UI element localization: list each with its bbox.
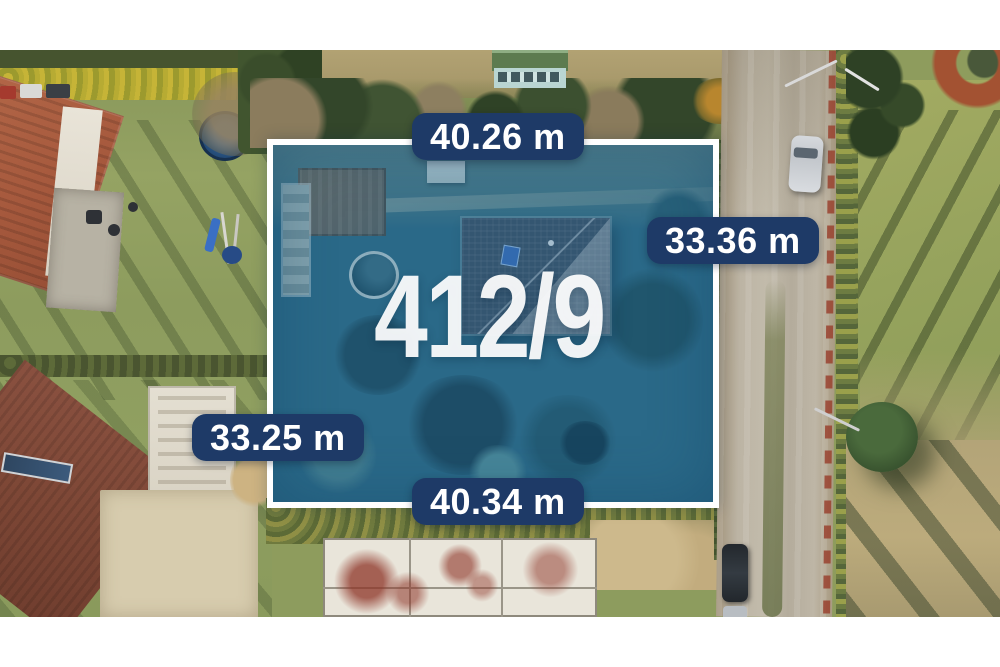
patio <box>46 188 124 313</box>
dirt-track <box>896 50 1000 122</box>
playground-slide <box>196 210 244 270</box>
cottage-windows <box>498 72 560 82</box>
garden-furniture <box>108 224 120 236</box>
parked-car <box>46 84 70 98</box>
brick-curb <box>823 51 836 617</box>
white-margin-top <box>0 0 1000 50</box>
white-margin-bottom <box>0 617 1000 667</box>
concrete-foundation-slabs <box>323 538 597 617</box>
garden-furniture <box>128 202 138 212</box>
dimension-label-left: 33.25 m <box>192 414 364 461</box>
large-bush <box>846 402 918 472</box>
garden-cottage <box>492 50 568 90</box>
garden-furniture <box>86 210 102 224</box>
parked-car <box>20 84 42 98</box>
dimension-label-right: 33.36 m <box>647 217 819 264</box>
dimension-label-top: 40.26 m <box>412 113 584 160</box>
road <box>716 50 838 617</box>
parked-car-partial <box>723 606 747 617</box>
screenshot-root: 412/9 40.26 m 33.36 m 33.25 m 40.34 m <box>0 0 1000 667</box>
dark-parked-car <box>722 544 748 602</box>
aerial-photo: 412/9 40.26 m 33.36 m 33.25 m 40.34 m <box>0 50 1000 617</box>
driveway-patio <box>100 490 258 617</box>
dimension-label-bottom: 40.34 m <box>412 478 584 525</box>
road-center-grass <box>762 280 786 617</box>
plot-number: 412/9 <box>374 258 604 376</box>
silver-car <box>788 135 824 193</box>
parked-car <box>0 86 16 99</box>
